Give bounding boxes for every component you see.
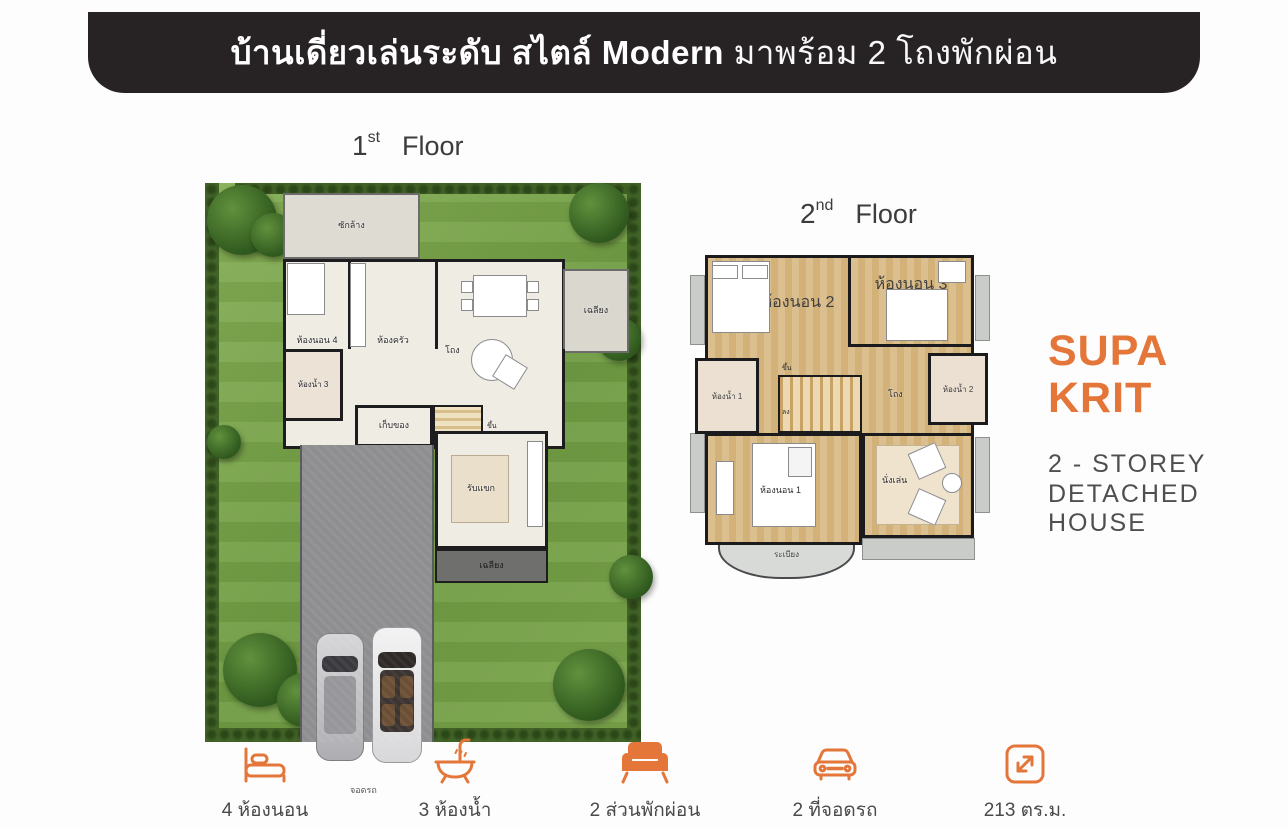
room-bedroom4-label: ห้องนอน 4: [297, 336, 338, 346]
area-icon: [1003, 740, 1047, 786]
room-porch-front: เฉลียง: [435, 549, 548, 583]
title-banner: บ้านเดี่ยวเล่นระดับ สไตล์ Modern มาพร้อม…: [88, 12, 1200, 93]
room-bath3: ห้องน้ำ 3: [283, 349, 343, 421]
room-hall-label: โถง: [445, 343, 460, 357]
room-porch-right-label: เฉลียง: [584, 306, 608, 316]
terrace-right: [975, 275, 990, 341]
room-living-label: รับแขก: [467, 481, 495, 495]
first-floor-plan: ซักล้าง ห้องนอน 4 ห้องครัว อาหาร เฉลียง …: [205, 183, 641, 742]
car-seat: [400, 676, 413, 698]
tree: [609, 555, 653, 599]
side-table: [942, 473, 962, 493]
first-floor-ordinal: st: [368, 129, 380, 146]
room-bedroom2-label: ห้องนอน 2: [762, 290, 835, 315]
dining-chair: [527, 299, 539, 311]
dining-chair: [527, 281, 539, 293]
dining-table: [473, 275, 527, 317]
terrace-left: [690, 275, 705, 345]
pillow: [742, 265, 768, 279]
room-bath3-label: ห้องน้ำ 3: [298, 381, 329, 390]
feature-bathrooms: 3 ห้องน้ำ: [375, 740, 535, 825]
second-floor-number: 2: [800, 198, 816, 229]
feature-bathrooms-label: 3 ห้องน้ำ: [419, 795, 492, 825]
room-bath2-label: ห้องน้ำ 2: [943, 383, 974, 396]
tree: [207, 425, 241, 459]
room-laundry: ซักล้าง: [283, 193, 420, 259]
brand-line1: SUPA: [1048, 328, 1168, 375]
hedge-left: [205, 183, 219, 742]
feature-bedrooms-label: 4 ห้องนอน: [222, 795, 308, 825]
room-storage: เก็บของ: [355, 405, 433, 447]
room-hall2-label: โถง: [888, 387, 903, 401]
pillow: [712, 265, 738, 279]
room-kitchen-label: ห้องครัว: [377, 336, 409, 346]
second-floor-plan: ห้องนอน 2 ห้องนอน 3 โถง ห้องน้ำ 1 ห้องน้…: [690, 255, 990, 595]
car-icon: [808, 740, 862, 786]
poster-canvas: บ้านเดี่ยวเล่นระดับ สไตล์ Modern มาพร้อม…: [0, 0, 1288, 828]
dining-chair: [461, 281, 473, 293]
room-bath1-label: ห้องน้ำ 1: [712, 390, 743, 403]
bed4-furniture: [287, 263, 325, 315]
tree: [569, 183, 629, 243]
room-laundry-label: ซักล้าง: [338, 221, 365, 231]
bed-icon: [239, 740, 291, 786]
driveway: จอดรถ: [300, 445, 434, 742]
feature-area: 213 ตร.ม.: [945, 740, 1105, 825]
first-floor-heading: 1stFloor: [352, 130, 464, 162]
feature-parking-label: 2 ที่จอดรถ: [793, 795, 878, 825]
features-row: 4 ห้องนอน 3 ห้องน้ำ: [185, 740, 1105, 825]
house-type-subtitle: 2 - STOREY DETACHED HOUSE: [1048, 450, 1206, 539]
car-seat: [400, 704, 413, 726]
sofa-furniture: [527, 441, 543, 527]
first-floor-number: 1: [352, 130, 368, 161]
bed3-furniture: [886, 289, 948, 341]
desk-furniture: [716, 461, 734, 515]
balcony-label: ระเบียง: [774, 548, 799, 561]
room-storage-label: เก็บของ: [379, 421, 409, 431]
brand-line2: KRIT: [1048, 375, 1168, 422]
second-floor-heading: 2ndFloor: [800, 198, 917, 230]
feature-parking: 2 ที่จอดรถ: [755, 740, 915, 825]
sofa-icon: [617, 740, 673, 786]
stairs2-down-label: ลง: [782, 407, 790, 418]
room-porch-front-label: เฉลียง: [479, 561, 503, 571]
subtitle-line3: HOUSE: [1048, 509, 1206, 539]
first-floor-word: Floor: [402, 131, 464, 161]
bathtub-icon: [430, 740, 480, 786]
banner-title-bold: บ้านเดี่ยวเล่นระดับ สไตล์ Modern: [231, 34, 724, 71]
terrace-bottom-right: [862, 538, 975, 560]
subtitle-line1: 2 - STOREY: [1048, 450, 1206, 480]
banner-title: บ้านเดี่ยวเล่นระดับ สไตล์ Modern มาพร้อม…: [231, 26, 1058, 79]
feature-area-label: 213 ตร.ม.: [984, 795, 1067, 825]
terrace-left: [690, 433, 705, 513]
stairs2-up-label: ขึ้น: [782, 363, 792, 374]
room-porch-right: เฉลียง: [563, 269, 629, 353]
dresser: [938, 261, 966, 283]
balcony: ระเบียง: [718, 545, 855, 579]
room-sitting-label: นั่งเล่น: [882, 473, 907, 487]
stairs-second-floor: [778, 375, 862, 433]
brand-name: SUPA KRIT: [1048, 328, 1168, 423]
subtitle-line2: DETACHED: [1048, 480, 1206, 510]
feature-bedrooms: 4 ห้องนอน: [185, 740, 345, 825]
second-floor-ordinal: nd: [816, 197, 834, 214]
room-bath2: ห้องน้ำ 2: [928, 353, 988, 425]
feature-lounges: 2 ส่วนพักผ่อน: [565, 740, 725, 825]
car-seat: [382, 676, 395, 698]
feature-lounges-label: 2 ส่วนพักผ่อน: [590, 795, 701, 825]
dining-chair: [461, 299, 473, 311]
room-bedroom1-label: ห้องนอน 1: [760, 483, 801, 497]
car-seat: [382, 704, 395, 726]
room-bath1: ห้องน้ำ 1: [695, 358, 759, 434]
banner-title-tail: มาพร้อม 2 โถงพักผ่อน: [724, 34, 1057, 71]
terrace-right: [975, 437, 990, 513]
pillow: [788, 447, 812, 477]
second-floor-word: Floor: [855, 199, 917, 229]
tree: [553, 649, 625, 721]
hedge-right: [627, 183, 641, 742]
kitchen-counter: [350, 263, 366, 347]
